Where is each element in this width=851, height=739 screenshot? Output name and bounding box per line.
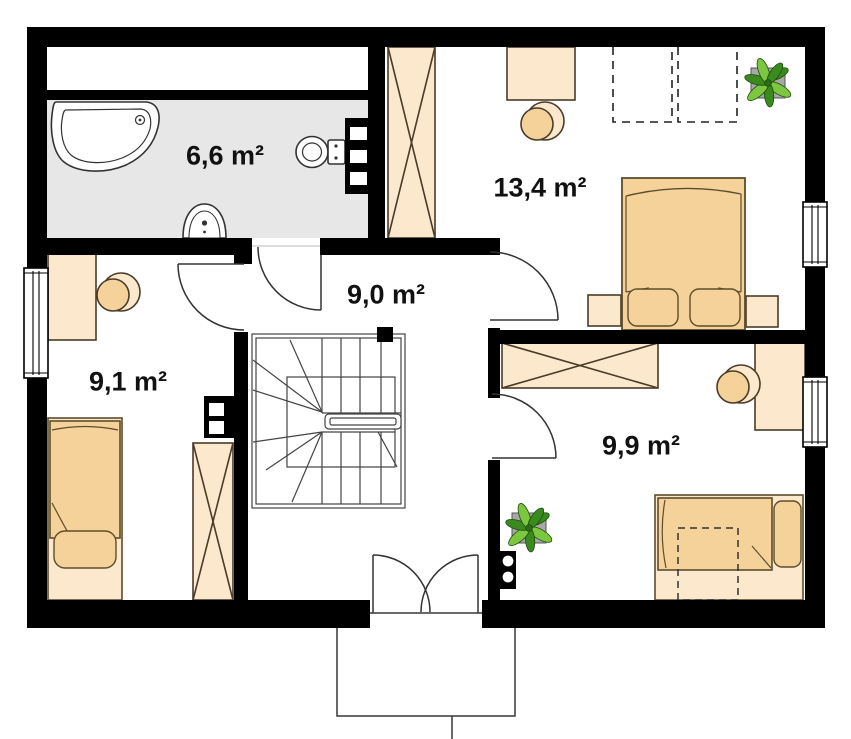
desk-icon [507,47,575,100]
wardrobe-icon [502,343,658,388]
nightstand-icon [746,296,778,327]
chimney-icon [204,396,248,438]
wardrobe-icon [388,47,435,238]
room-label-bedroom-top-right: 13,4 m² [493,173,586,204]
stool-icon [97,273,140,311]
desk-icon [48,250,96,340]
room-label-bedroom-bottom-right: 9,9 m² [602,431,680,462]
room-label-bathroom: 6,6 m² [186,141,264,172]
desk-icon [755,342,805,430]
single-bed-icon [655,495,803,600]
plant-icon [744,57,793,107]
window-icon [803,202,827,267]
room-label-bedroom-left: 9,1 m² [89,367,167,398]
nightstand-icon [588,295,621,326]
toilet-installation-wall [345,118,373,194]
plant-icon [505,502,554,552]
double-bed-icon [622,178,745,330]
stool-icon [717,365,760,403]
chimney-icon [500,551,516,589]
balcony [337,613,515,739]
skylight-dashed-outline [613,47,737,122]
toilet-icon [296,137,345,168]
room-label-hall: 9,0 m² [347,280,425,311]
stool-icon [521,102,564,140]
stair-newel-post [377,327,393,342]
window-icon [803,377,827,447]
window-icon [24,268,48,378]
staircase-icon [252,327,405,508]
floor-plan: 6,6 m² 13,4 m² 9,0 m² 9,1 m² 9,9 m² [0,0,851,739]
wardrobe-icon [193,443,233,600]
single-bed-icon [48,418,122,600]
